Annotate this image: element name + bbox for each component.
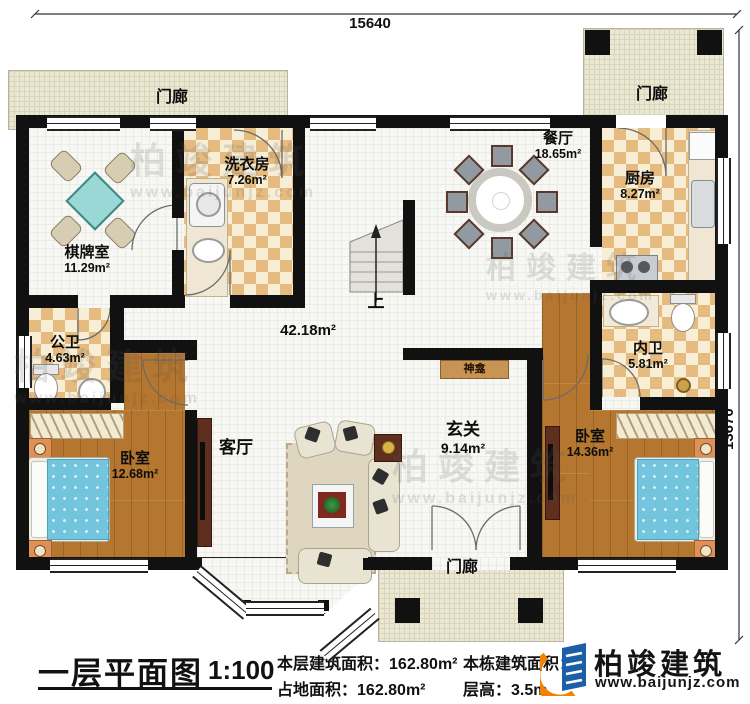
room-name: 客厅 <box>219 438 253 457</box>
porch-column <box>697 30 722 55</box>
porch-column <box>585 30 610 55</box>
porch-column <box>395 598 420 623</box>
room-name: 餐厅 <box>543 130 573 147</box>
room-label-porch-tl: 门廊 <box>132 89 212 107</box>
dimension-top: 15640 <box>325 15 415 32</box>
watermark-text: 柏竣建筑 <box>486 243 655 287</box>
room-label-bedroom-right: 卧室 14.36m² <box>540 428 640 460</box>
room-label-foyer: 玄关 9.14m² <box>413 420 513 456</box>
wall-foyer-north <box>403 348 543 360</box>
window <box>50 558 148 573</box>
room-label-porch-tr: 门廊 <box>612 86 692 104</box>
room-label-living: 客厅 <box>186 438 286 458</box>
room-name: 内卫 <box>633 340 663 357</box>
room-name: 门廊 <box>636 86 668 103</box>
room-area: 8.27m² <box>590 187 690 201</box>
wall-bedroomleft-east <box>185 410 197 557</box>
window <box>150 116 196 131</box>
window <box>450 116 550 131</box>
room-area: 11.29m² <box>37 261 137 275</box>
window <box>47 116 120 131</box>
room-name: 玄关 <box>446 420 480 439</box>
room-label-kitchen: 厨房 8.27m² <box>590 170 690 202</box>
stairs-up-label: 上 <box>356 292 396 312</box>
room-area: 9.14m² <box>413 440 513 456</box>
wall-chess-laundry <box>172 250 184 295</box>
wall-innerbath-south <box>590 397 602 410</box>
room-label-public-bath: 公卫 4.63m² <box>15 334 115 366</box>
bay-post <box>363 558 374 570</box>
room-area: 42.18m² <box>280 322 336 339</box>
dimension-right: 13670 <box>720 360 737 450</box>
room-label-chess: 棋牌室 11.29m² <box>37 244 137 276</box>
room-label-bedroom-left: 卧室 12.68m² <box>85 450 185 482</box>
room-area: 12.68m² <box>85 467 185 481</box>
wall-stairs <box>403 200 415 295</box>
room-area: 4.63m² <box>15 351 115 365</box>
wall-hall-north <box>16 295 78 308</box>
watermark-url: www.baijunjz.com <box>486 287 655 303</box>
room-area: 18.65m² <box>508 147 608 161</box>
watermark-url: www.baijunjz.com <box>14 390 200 408</box>
shrine-label: 神龛 <box>464 363 486 375</box>
room-area: 7.26m² <box>197 173 297 187</box>
watermark: 柏竣建筑 www.baijunjz.com <box>486 243 655 303</box>
room-label-dining: 餐厅 18.65m² <box>508 130 608 162</box>
room-area-living: 42.18m² <box>258 322 358 339</box>
room-name: 门廊 <box>156 89 188 106</box>
room-name: 棋牌室 <box>64 244 109 261</box>
stairs <box>350 220 403 302</box>
room-name: 门廊 <box>446 559 478 576</box>
bay-window <box>246 601 324 616</box>
room-name: 洗衣房 <box>224 156 269 173</box>
kitchen-porch-door-opening <box>616 115 666 128</box>
dimension-value: 13670 <box>720 408 737 450</box>
window <box>310 116 376 131</box>
room-name: 卧室 <box>575 428 605 445</box>
room-label-porch-bottom: 门廊 <box>422 559 502 577</box>
room-name: 卧室 <box>120 450 150 467</box>
porch-column <box>518 598 543 623</box>
wall-innerbath-south <box>640 397 716 410</box>
shrine-cabinet: 神龛 <box>440 360 509 379</box>
room-name: 厨房 <box>625 170 655 187</box>
dimension-value: 15640 <box>349 15 391 32</box>
room-area: 5.81m² <box>598 357 698 371</box>
room-label-laundry: 洗衣房 7.26m² <box>197 156 297 188</box>
floor-plan-page: 神龛 门廊 门廊 门廊 棋牌室 11.29m² 洗衣房 7.26m² 餐厅 18… <box>0 0 750 704</box>
room-area: 14.36m² <box>540 445 640 459</box>
window <box>578 558 676 573</box>
room-label-inner-bath: 内卫 5.81m² <box>598 340 698 372</box>
watermark-url: www.baijunjz.com <box>392 490 578 508</box>
stairs-direction: 上 <box>368 292 385 311</box>
room-name: 公卫 <box>50 334 80 351</box>
window <box>716 158 731 244</box>
